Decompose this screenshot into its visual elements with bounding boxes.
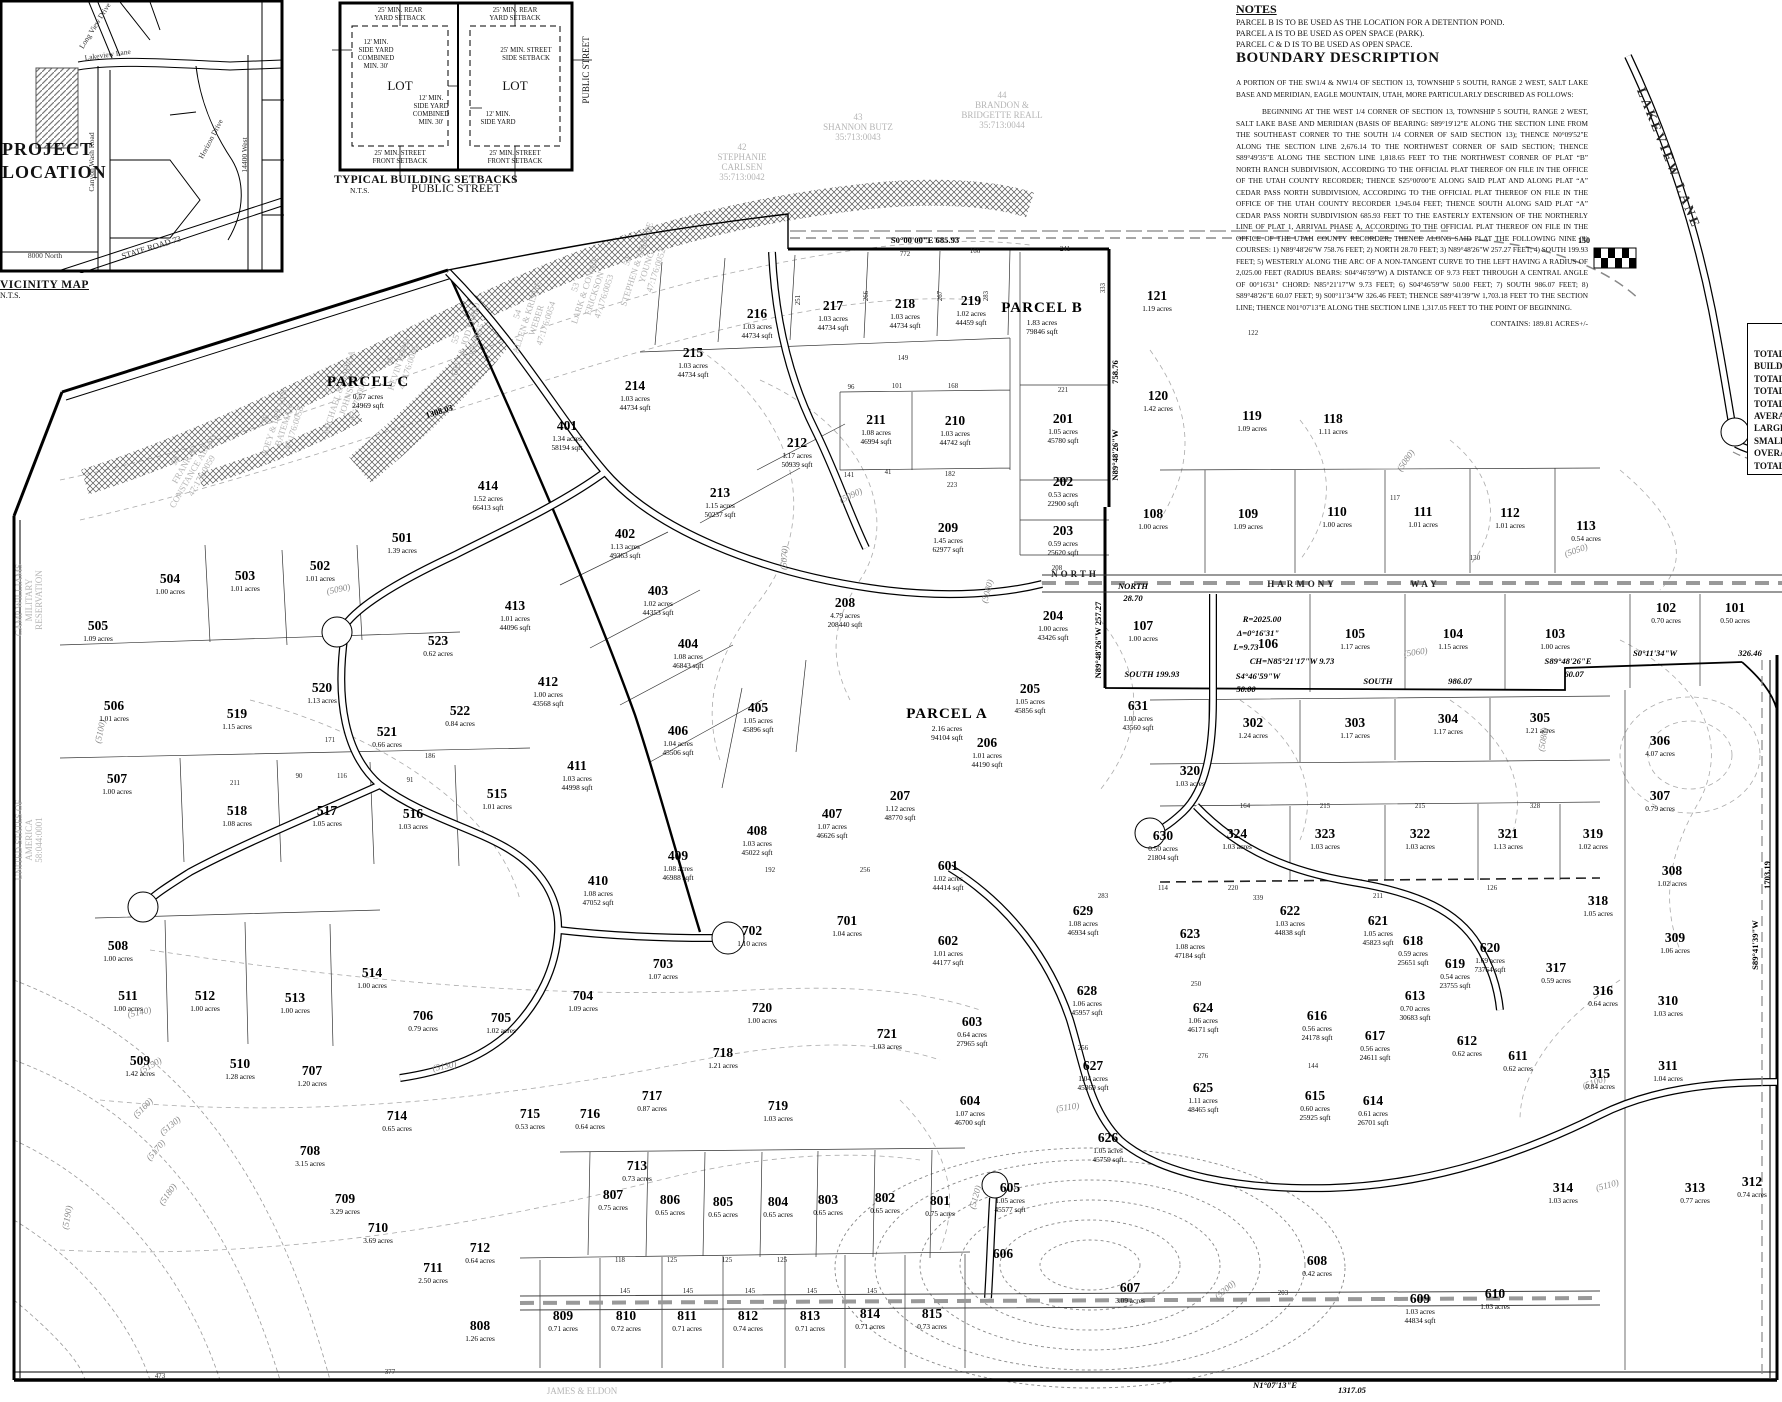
lot-acres: 1.08 acres	[583, 889, 613, 898]
lot-acres: 1.08 acres	[222, 819, 252, 828]
lot-sqft: 44998 sqft	[561, 783, 592, 792]
lot-acres: 1.28 acres	[225, 1072, 255, 1081]
lot-sqft: 73764 sqft	[1474, 965, 1505, 974]
dimension-label: 220	[1228, 885, 1239, 892]
contour-elevation-label: (5050)	[1563, 541, 1589, 559]
lot-acres: 1.06 acres	[1072, 999, 1102, 1008]
lot-sqft: 208440 sqft	[828, 620, 863, 629]
lot-number: 611	[1508, 1048, 1528, 1063]
summary-line: TOTAL	[1754, 385, 1782, 397]
lot-number: 102	[1656, 600, 1677, 615]
lot-number: 804	[768, 1194, 789, 1209]
lot-number: 320	[1180, 763, 1201, 778]
lot-acres: 1.05 acres	[1093, 1146, 1123, 1155]
lot-acres: 1.02 acres	[486, 1026, 516, 1035]
dimension-label: 328	[1530, 803, 1541, 810]
lot-number: 712	[470, 1240, 491, 1255]
lot-acres: 1.08 acres	[673, 652, 703, 661]
lot-sqft: 46934 sqft	[1067, 928, 1098, 937]
lot-acres: 0.65 acres	[813, 1208, 843, 1217]
notes-lines: PARCEL B IS TO BE USED AS THE LOCATION F…	[1236, 17, 1596, 50]
dimension-label: 122	[1248, 330, 1259, 337]
dimension-label: 192	[765, 867, 776, 874]
svg-text:25' MIN. REAR: 25' MIN. REAR	[378, 7, 423, 14]
bearing-label: 986.07	[1448, 676, 1472, 686]
lot-acres: 0.61 acres	[1358, 1109, 1388, 1118]
bearing-label: CH=N85°21'17"W 9.73	[1250, 656, 1335, 666]
lot-acres: 1.08 acres	[663, 864, 693, 873]
bearing-label: 758.76	[1110, 359, 1120, 383]
lot-number: 703	[653, 956, 674, 971]
lot-acres: 0.65 acres	[382, 1124, 412, 1133]
lot-acres: 0.73 acres	[917, 1322, 947, 1331]
bearing-label: S89°48'26"E	[1545, 656, 1592, 666]
lot-acres: 1.09 acres	[83, 634, 113, 643]
dimension-label: 96	[848, 384, 855, 391]
lot-sqft: 66413 sqft	[472, 503, 503, 512]
lot-number: 312	[1742, 1174, 1763, 1189]
lot-number: 204	[1043, 608, 1064, 623]
lot-acres: 0.56 acres	[1360, 1044, 1390, 1053]
lot-acres: 0.62 acres	[1503, 1064, 1533, 1073]
lot-number: 309	[1665, 930, 1686, 945]
lot-acres: 1.20 acres	[297, 1079, 327, 1088]
lot-number: 506	[104, 698, 125, 713]
svg-text:JAMES & ELDON: JAMES & ELDON	[547, 1386, 618, 1396]
lot-acres: 1.09 acres	[1233, 522, 1263, 531]
lot-acres: 0.71 acres	[548, 1324, 578, 1333]
lot-sqft: 49363 sqft	[609, 551, 640, 560]
dimension-label: 145	[807, 1288, 818, 1295]
contour-elevation-label: (5110)	[1055, 1100, 1079, 1113]
lot-acres: 0.65 acres	[655, 1208, 685, 1217]
lot-number: 811	[677, 1308, 697, 1323]
lot-sqft: 43426 sqft	[1037, 633, 1068, 642]
lot-acres: 1.13 acres	[307, 696, 337, 705]
lot-sqft: 45577 sqft	[994, 1205, 1025, 1214]
lot-number: 319	[1583, 826, 1604, 841]
lot-acres: 0.87 acres	[637, 1104, 667, 1113]
note-line: PARCEL C & D IS TO BE USED AS OPEN SPACE…	[1236, 39, 1596, 50]
dimension-label: 256	[860, 867, 871, 874]
lot-acres: 1.15 acres	[705, 501, 735, 510]
lot-acres: 1.00 acres	[280, 1006, 310, 1015]
lot-number: 120	[1148, 388, 1169, 403]
lot-number: 719	[768, 1098, 789, 1113]
contour-elevation-label: (5060)	[1403, 645, 1428, 658]
lot-number: 213	[710, 485, 731, 500]
svg-text:25' MIN. REAR: 25' MIN. REAR	[493, 7, 538, 14]
lot-acres: 1.09 acres	[568, 1004, 598, 1013]
dimension-label: 149	[898, 355, 909, 362]
lot-number: 412	[538, 674, 559, 689]
lot-sqft: 46988 sqft	[662, 873, 693, 882]
boundary-paragraph: A PORTION OF THE SW1/4 & NW1/4 OF SECTIO…	[1236, 77, 1588, 100]
owner-label: 44BRANDON &BRIDGETTE REALL35:713:0044	[961, 90, 1042, 130]
lot-acres: 1.06 acres	[1660, 946, 1690, 955]
lot-acres: 1.03 acres	[678, 361, 708, 370]
lot-number: 510	[230, 1056, 251, 1071]
dimension-label: 339	[1253, 895, 1264, 902]
project-location-label: PROJECT LOCATION	[2, 138, 107, 183]
lot-number: 119	[1242, 408, 1262, 423]
dimension-label: 141	[844, 472, 854, 479]
lot-sqft: 45957 sqft	[1071, 1008, 1102, 1017]
lot-sqft: 48465 sqft	[1187, 1105, 1218, 1114]
lot-acres: 1.00 acres	[1138, 522, 1168, 531]
lot-sqft: 44734 sqft	[619, 403, 650, 412]
lot-number: 713	[627, 1158, 648, 1173]
lot-number: 202	[1053, 474, 1074, 489]
dimension-label: 333	[1100, 282, 1107, 293]
parcel-sqft: 24969 sqft	[352, 401, 385, 410]
svg-text:25' MIN. STREET: 25' MIN. STREET	[500, 47, 552, 54]
lot-number: 628	[1077, 983, 1098, 998]
svg-text:COMBINED: COMBINED	[358, 55, 394, 62]
lot-acres: 1.07 acres	[955, 1109, 985, 1118]
lot-acres: 1.02 acres	[956, 309, 986, 318]
lot-sqft: 44414 sqft	[932, 883, 963, 892]
lot-acres: 1.45 acres	[933, 536, 963, 545]
dimension-label: 211	[230, 780, 240, 787]
lot-acres: 1.24 acres	[1238, 731, 1268, 740]
lot-sqft: 44190 sqft	[971, 760, 1002, 769]
lot-number: 603	[962, 1014, 983, 1029]
lot-number: 208	[835, 595, 856, 610]
lot-sqft: 45506 sqft	[662, 748, 693, 757]
lot-acres: 1.04 acres	[1653, 1074, 1683, 1083]
lot-acres: 1.11 acres	[1188, 1096, 1217, 1105]
lot-acres: 1.03 acres	[890, 312, 920, 321]
lot-acres: 1.05 acres	[1583, 909, 1613, 918]
lot-acres: 1.01 acres	[1408, 520, 1438, 529]
lot-acres: 1.04 acres	[832, 929, 862, 938]
project-location-area	[36, 68, 78, 148]
lot-acres: 1.03 acres	[1175, 779, 1205, 788]
svg-text:42: 42	[738, 142, 747, 152]
lot-number: 324	[1227, 826, 1248, 841]
lot-acres: 1.01 acres	[933, 949, 963, 958]
lot-acres: 0.53 acres	[515, 1122, 545, 1131]
lot-sqft: 44838 sqft	[1274, 928, 1305, 937]
dimension-label: 166	[970, 248, 981, 255]
lot-acres: 0.71 acres	[795, 1324, 825, 1333]
lot-acres: 1.03 acres	[742, 322, 772, 331]
lot-number: 209	[938, 520, 959, 535]
lot-acres: 1.01 acres	[972, 751, 1002, 760]
lot-acres: 1.26 acres	[465, 1334, 495, 1343]
dimension-label: 241	[1060, 246, 1070, 253]
lot-number: 813	[800, 1308, 821, 1323]
lot-sqft: 23755 sqft	[1439, 981, 1470, 990]
lot-number: 101	[1725, 600, 1746, 615]
dimension-label: 168	[948, 383, 959, 390]
lot-acres: 0.72 acres	[611, 1324, 641, 1333]
svg-text:FRONT SETBACK: FRONT SETBACK	[488, 158, 543, 165]
dimension-label: 90	[296, 773, 303, 780]
lot-acres: 1.09 acres	[1237, 424, 1267, 433]
bearing-label: SOUTH 199.93	[1125, 669, 1181, 679]
lot-number: 629	[1073, 903, 1094, 918]
lot-acres: 1.69 acres	[1475, 956, 1505, 965]
contour-elevation-label: (5170)	[144, 1138, 167, 1163]
owner-label: UNITED STATES OFAMERICA58:044:0001	[14, 800, 44, 881]
contour-elevation-label: (5160)	[131, 1096, 155, 1120]
lot-acres: 1.02 acres	[1657, 879, 1687, 888]
lot-acres: 1.12 acres	[885, 804, 915, 813]
owner-label: 43SHANNON BUTZ35:713:0043	[823, 112, 893, 142]
lot-acres: 1.03 acres	[1405, 842, 1435, 851]
dimension-label: 144	[1308, 1063, 1319, 1070]
parcel-label: PARCEL A	[906, 706, 987, 722]
lot-acres: 0.71 acres	[672, 1324, 702, 1333]
lot-number: 519	[227, 706, 248, 721]
lot-number: 109	[1238, 506, 1259, 521]
lot-acres: 1.03 acres	[398, 822, 428, 831]
lot-acres: 1.00 acres	[113, 1004, 143, 1013]
slope-contours	[14, 980, 330, 1380]
svg-text:UNITED STATES OF: UNITED STATES OF	[14, 800, 24, 881]
parcel-label: PARCEL B	[1001, 300, 1082, 316]
svg-text:MILITARY: MILITARY	[24, 578, 34, 621]
lot-sqft: 27965 sqft	[956, 1039, 987, 1048]
owner-label: JAMES & ELDON	[547, 1386, 618, 1396]
summary-line: LARGE	[1754, 422, 1782, 434]
lot-number: 414	[478, 478, 499, 493]
road-name-label: HARMONY	[1267, 579, 1337, 589]
lot-sqft: 44834 sqft	[1404, 1316, 1435, 1325]
dimension-label: 211	[1373, 893, 1383, 900]
lot-acres: 0.70 acres	[1651, 616, 1681, 625]
bearing-label: S0°11'34"W	[1633, 648, 1678, 658]
lot-number: 502	[310, 558, 331, 573]
svg-text:58:044:0001: 58:044:0001	[34, 817, 44, 863]
dimension-label: 283	[1098, 893, 1109, 900]
lot-acres: 1.03 acres	[620, 394, 650, 403]
svg-text:43: 43	[854, 112, 864, 122]
lot-acres: 0.79 acres	[408, 1024, 438, 1033]
note-line: PARCEL B IS TO BE USED AS THE LOCATION F…	[1236, 17, 1596, 28]
lot-number: 718	[713, 1045, 734, 1060]
bearing-label: 1703.19	[1762, 861, 1772, 889]
lot-acres: 0.66 acres	[372, 740, 402, 749]
lot-number: 410	[588, 873, 609, 888]
lot-number: 113	[1576, 518, 1596, 533]
lot-acres: 0.84 acres	[1585, 1082, 1615, 1091]
lot-acres: 1.21 acres	[708, 1061, 738, 1070]
lot-number: 619	[1445, 956, 1466, 971]
lot-acres: 1.02 acres	[1578, 842, 1608, 851]
lot-number: 509	[130, 1053, 151, 1068]
lot-acres: 0.64 acres	[575, 1122, 605, 1131]
lot-number: 515	[487, 786, 508, 801]
lot-number: 304	[1438, 711, 1459, 726]
lot-acres: 1.02 acres	[933, 874, 963, 883]
setbacks-outer-box	[340, 3, 572, 170]
lot-acres: 0.71 acres	[855, 1322, 885, 1331]
lot-acres: 0.62 acres	[423, 649, 453, 658]
lot-number: 218	[895, 296, 916, 311]
road-name-label: LAKEVIEW LANE	[1634, 85, 1705, 231]
lot-sqft: 47052 sqft	[582, 898, 613, 907]
dimension-label: 215	[1320, 803, 1331, 810]
svg-text:35:713:0042: 35:713:0042	[719, 172, 765, 182]
lot-sqft: 50939 sqft	[781, 460, 812, 469]
lot-number: 511	[118, 988, 138, 1003]
bearing-label: 326.46	[1737, 648, 1762, 658]
lot-sqft: 25651 sqft	[1397, 958, 1428, 967]
lot-number: 808	[470, 1318, 491, 1333]
parcel-sqft: 79846 sqft	[1026, 327, 1059, 336]
lot-acres: 0.74 acres	[733, 1324, 763, 1333]
lot-acres: 1.08 acres	[1068, 919, 1098, 928]
notes-title: NOTES	[1236, 2, 1596, 17]
dimension-label: 116	[337, 773, 348, 780]
lot-acres: 1.01 acres	[230, 584, 260, 593]
road-label: 14400 West	[240, 136, 249, 172]
lot-number: 318	[1588, 893, 1609, 908]
lot-number: 503	[235, 568, 256, 583]
svg-text:BRANDON &: BRANDON &	[975, 100, 1029, 110]
lot-acres: 1.00 acres	[747, 1016, 777, 1025]
lot-number: 625	[1193, 1080, 1214, 1095]
lot-number: 404	[678, 636, 699, 651]
lot-acres: 1.00 acres	[1123, 714, 1153, 723]
svg-text:COMBINED: COMBINED	[413, 111, 449, 118]
dimension-label: 164	[1240, 803, 1251, 810]
svg-text:BRIDGETTE REALL: BRIDGETTE REALL	[961, 110, 1042, 120]
lot-acres: 1.03 acres	[818, 314, 848, 323]
lot-number: 206	[977, 735, 998, 750]
bearing-label: S4°46'59"W	[1236, 671, 1282, 681]
lot-acres: 3.69 acres	[363, 1236, 393, 1245]
lot-acres: 1.17 acres	[782, 451, 812, 460]
dimension-label: 250	[1191, 981, 1202, 988]
lot-number: 316	[1593, 983, 1614, 998]
lot-acres: 1.05 acres	[995, 1196, 1025, 1205]
lot-acres: 0.64 acres	[1588, 999, 1618, 1008]
svg-text:AMERICA: AMERICA	[24, 819, 34, 861]
summary-line: TOTAL	[1754, 460, 1782, 472]
lot-acres: 0.65 acres	[763, 1210, 793, 1219]
svg-text:12' MIN.: 12' MIN.	[419, 95, 444, 102]
lot-acres: 0.70 acres	[1400, 1004, 1430, 1013]
svg-text:YARD SETBACK: YARD SETBACK	[489, 15, 540, 22]
lot-number: 310	[1658, 993, 1679, 1008]
lot-number: 121	[1147, 288, 1168, 303]
svg-text:SIDE YARD: SIDE YARD	[480, 119, 515, 126]
dimension-label: 377	[385, 1369, 396, 1376]
dimension-label: 101	[892, 383, 902, 390]
dimension-label: 276	[1198, 1053, 1209, 1060]
lot-sqft: 45823 sqft	[1362, 938, 1393, 947]
lot-acres: 1.00 acres	[1038, 624, 1068, 633]
lot-number: 614	[1363, 1093, 1384, 1108]
public-street-side: PUBLIC STREET	[581, 36, 591, 104]
contour-elevation-label: (5120)	[967, 1184, 983, 1210]
vicinity-map-title: VICINITY MAP N.T.S.	[0, 279, 120, 300]
lot-number: 507	[107, 771, 128, 786]
lot-number: 110	[1327, 504, 1347, 519]
svg-text:35:713:0044: 35:713:0044	[979, 120, 1025, 130]
lot-number: 407	[822, 806, 843, 821]
boundary-title: BOUNDARY DESCRIPTION	[1236, 50, 1588, 67]
lot-acres: 1.15 acres	[222, 722, 252, 731]
lot-number: 107	[1133, 618, 1154, 633]
lot-acres: 0.54 acres	[1440, 972, 1470, 981]
lot-number: 605	[1000, 1180, 1021, 1195]
lot-acres: 1.03 acres	[940, 429, 970, 438]
lot-acres: 1.13 acres	[1493, 842, 1523, 851]
svg-text:25' MIN. STREET: 25' MIN. STREET	[489, 150, 541, 157]
svg-text:YARD SETBACK: YARD SETBACK	[374, 15, 425, 22]
lot-number: 622	[1280, 903, 1301, 918]
lot-acres: 1.08 acres	[861, 428, 891, 437]
lot-acres: 1.07 acres	[648, 972, 678, 981]
svg-text:25' MIN. STREET: 25' MIN. STREET	[374, 150, 426, 157]
svg-text:RESERVATION: RESERVATION	[34, 570, 44, 630]
dimension-label: 473	[155, 1373, 166, 1380]
lot-sqft: 46171 sqft	[1187, 1025, 1218, 1034]
plat-sheet: { "sheet": { "contains": "CONTAINS: 189.…	[0, 0, 1782, 1402]
lot-sqft: 44742 sqft	[939, 438, 970, 447]
lot-sqft: 45022 sqft	[741, 848, 772, 857]
summary-line: TOTAL	[1754, 373, 1782, 385]
summary-line: AVERA	[1754, 410, 1782, 422]
dimension-label: 125	[722, 1257, 733, 1264]
lot-number: 809	[553, 1308, 574, 1323]
lot-acres: 1.07 acres	[817, 822, 847, 831]
svg-text:CARLSEN: CARLSEN	[721, 162, 763, 172]
dimension-label: 145	[683, 1288, 694, 1295]
parcel-acres: 1.83 acres	[1027, 318, 1057, 327]
lot-number: 609	[1410, 1291, 1431, 1306]
lot-acres: 3.09 acres	[1115, 1296, 1145, 1305]
lot-number: 306	[1650, 733, 1671, 748]
lot-acres: 1.19 acres	[1142, 304, 1172, 313]
lot-acres: 1.00 acres	[155, 587, 185, 596]
lot-acres: 1.05 acres	[1048, 427, 1078, 436]
road-name-label: NORTH	[1051, 569, 1099, 579]
lot-number: 111	[1414, 504, 1433, 519]
note-line: PARCEL A IS TO BE USED AS OPEN SPACE (PA…	[1236, 28, 1596, 39]
lot-number: 303	[1345, 715, 1366, 730]
lot-acres: 0.73 acres	[622, 1174, 652, 1183]
dimension-label: 118	[615, 1257, 626, 1264]
lot-sqft: 44734 sqft	[741, 331, 772, 340]
lot-acres: 1.01 acres	[99, 714, 129, 723]
lot-acres: 0.75 acres	[925, 1209, 955, 1218]
lot-number: 512	[195, 988, 216, 1003]
lot-acres: 0.56 acres	[1302, 1024, 1332, 1033]
lot-number: 413	[505, 598, 526, 613]
lot-sqft: 47184 sqft	[1174, 951, 1205, 960]
lot-number: 402	[615, 526, 636, 541]
lot-number: 314	[1553, 1180, 1574, 1195]
lot-acres: 1.00 acres	[1322, 520, 1352, 529]
lot-number: 211	[866, 412, 886, 427]
svg-text:MIN. 30': MIN. 30'	[419, 119, 444, 126]
lot-number: 810	[616, 1308, 637, 1323]
lot-acres: 1.00 acres	[190, 1004, 220, 1013]
bearing-label: N89°48'26"W 257.27	[1093, 601, 1103, 679]
dimension-label: 256	[1078, 1045, 1089, 1052]
lot-acres: 0.62 acres	[1452, 1049, 1482, 1058]
lot-acres: 1.01 acres	[1495, 521, 1525, 530]
lot-acres: 1.05 acres	[1015, 697, 1045, 706]
road-name-label: WAY	[1410, 579, 1439, 589]
lot-number: 814	[860, 1306, 881, 1321]
